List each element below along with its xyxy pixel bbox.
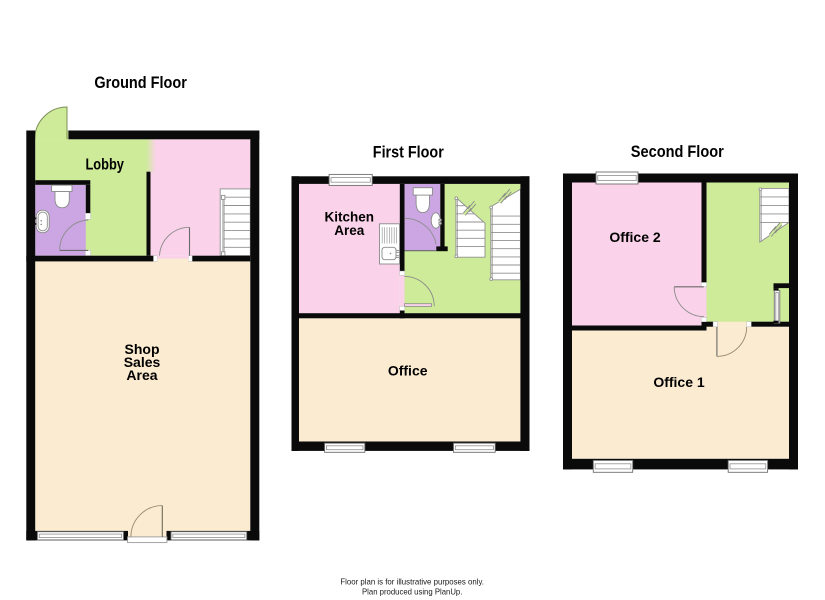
svg-text:Lobby: Lobby [85, 157, 124, 174]
svg-text:First Floor: First Floor [373, 144, 444, 162]
svg-text:Ground Floor: Ground Floor [94, 74, 187, 92]
svg-text:Area: Area [126, 367, 157, 383]
svg-text:Office 2: Office 2 [609, 229, 661, 245]
svg-text:Office: Office [388, 362, 428, 378]
svg-text:Office 1: Office 1 [653, 374, 705, 390]
svg-text:Area: Area [334, 223, 365, 238]
svg-text:Second Floor: Second Floor [631, 143, 725, 161]
svg-text:Floor plan is for illustrative: Floor plan is for illustrative purposes … [340, 576, 484, 586]
svg-text:Plan produced using PlanUp.: Plan produced using PlanUp. [362, 586, 462, 596]
